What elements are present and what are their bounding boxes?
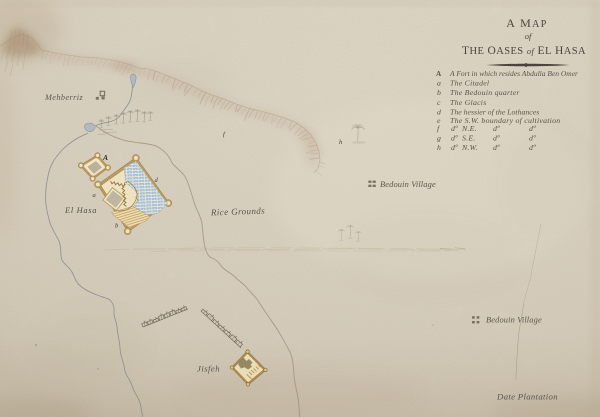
svg-text:dº: dº bbox=[493, 143, 500, 152]
svg-text:The Glacis: The Glacis bbox=[450, 98, 487, 107]
svg-text:g: g bbox=[437, 134, 441, 143]
svg-text:The Bedouin quarter: The Bedouin quarter bbox=[450, 88, 520, 97]
svg-text:dº: dº bbox=[529, 143, 536, 152]
svg-text:El Hasa: El Hasa bbox=[64, 206, 97, 215]
svg-text:Mehberriz: Mehberriz bbox=[44, 93, 84, 102]
svg-text:Bedouin Village: Bedouin Village bbox=[380, 180, 436, 189]
svg-text:dº: dº bbox=[529, 134, 536, 143]
svg-text:a: a bbox=[437, 79, 441, 88]
svg-text:c: c bbox=[437, 98, 441, 107]
svg-text:N.E.: N.E. bbox=[461, 124, 477, 133]
svg-text:dº: dº bbox=[493, 134, 500, 143]
svg-text:b: b bbox=[437, 88, 441, 97]
svg-text:dº: dº bbox=[451, 143, 458, 152]
svg-text:dº: dº bbox=[493, 124, 500, 133]
svg-text:The Citadel: The Citadel bbox=[450, 79, 489, 88]
svg-text:Rice Grounds: Rice Grounds bbox=[210, 206, 266, 218]
svg-text:c: c bbox=[124, 181, 127, 187]
svg-text:a: a bbox=[93, 192, 96, 199]
svg-text:h: h bbox=[437, 143, 441, 152]
svg-text:h: h bbox=[339, 139, 342, 146]
svg-text:dº: dº bbox=[451, 124, 458, 133]
svg-text:dº: dº bbox=[451, 134, 458, 143]
svg-text:A: A bbox=[436, 70, 442, 78]
svg-text:Date Plantation: Date Plantation bbox=[496, 392, 558, 402]
svg-text:A MAP: A MAP bbox=[506, 16, 547, 30]
svg-text:dº: dº bbox=[529, 124, 536, 133]
svg-text:Jisfeh: Jisfeh bbox=[197, 364, 220, 374]
svg-text:Bedouin Village: Bedouin Village bbox=[486, 316, 542, 325]
svg-text:THE OASES of EL HASA: THE OASES of EL HASA bbox=[462, 45, 586, 57]
svg-text:A Fort in which resides Abdull: A Fort in which resides Abdulla Ben Omer bbox=[449, 69, 578, 78]
svg-text:N.W.: N.W. bbox=[461, 143, 478, 152]
svg-text:S.E.: S.E. bbox=[462, 134, 476, 143]
